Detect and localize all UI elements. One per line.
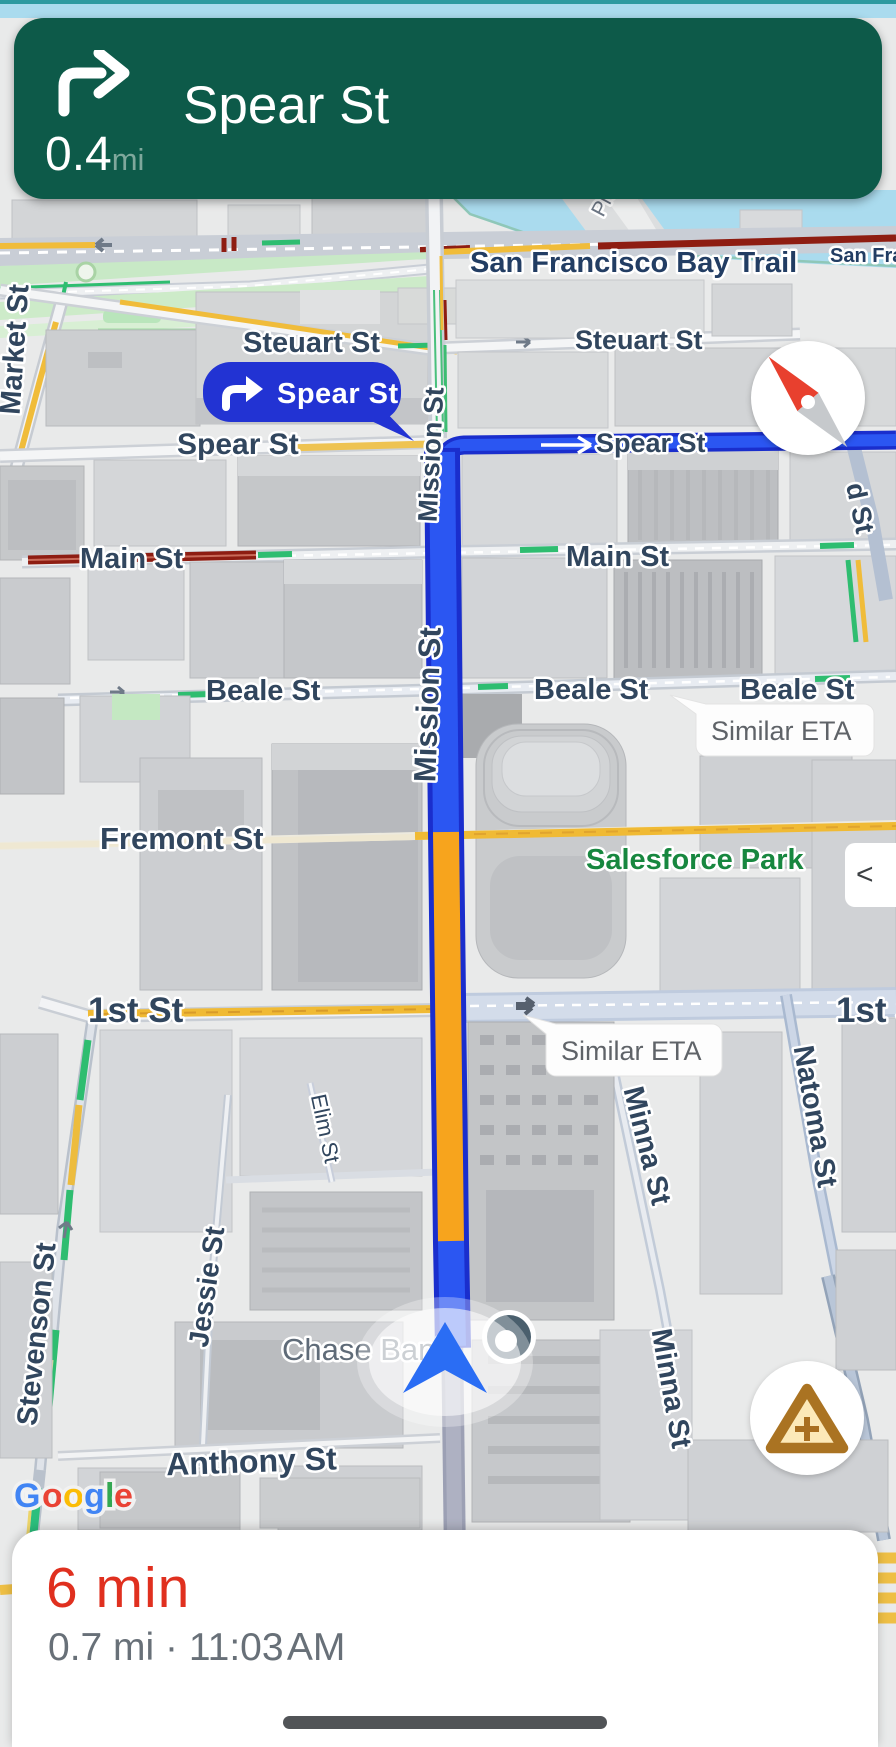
svg-text:Steuart St: Steuart St [243,327,380,359]
svg-text:Steuart St: Steuart St [575,325,703,355]
svg-text:g: g [84,1477,105,1515]
svg-text:Salesforce Park: Salesforce Park [586,844,805,876]
svg-text:Beale St: Beale St [206,675,321,707]
svg-text:o: o [63,1477,84,1515]
svg-text:Main St: Main St [566,541,669,573]
svg-text:Mission St: Mission St [407,627,447,783]
svg-text:Beale St: Beale St [534,674,649,706]
svg-text:o: o [42,1477,63,1515]
svg-text:G: G [14,1477,40,1515]
svg-text:San Fran: San Fran [830,245,896,267]
svg-text:Similar ETA: Similar ETA [711,716,852,746]
svg-text:San Francisco Bay Trail: San Francisco Bay Trail [470,247,797,279]
svg-text:Anthony St: Anthony St [165,1440,337,1482]
svg-text:e: e [114,1477,133,1515]
svg-text:Spear St: Spear St [596,428,706,458]
svg-text:1st S: 1st S [836,991,896,1030]
svg-text:<: < [856,858,874,891]
svg-text:Spear St: Spear St [277,378,399,410]
svg-text:1st St: 1st St [88,991,184,1030]
svg-text:Beale St: Beale St [740,674,855,706]
svg-text:Fremont St: Fremont St [100,821,264,856]
svg-text:Spear St: Spear St [177,428,299,461]
svg-text:Main St: Main St [80,543,183,575]
svg-text:Similar ETA: Similar ETA [561,1036,702,1066]
